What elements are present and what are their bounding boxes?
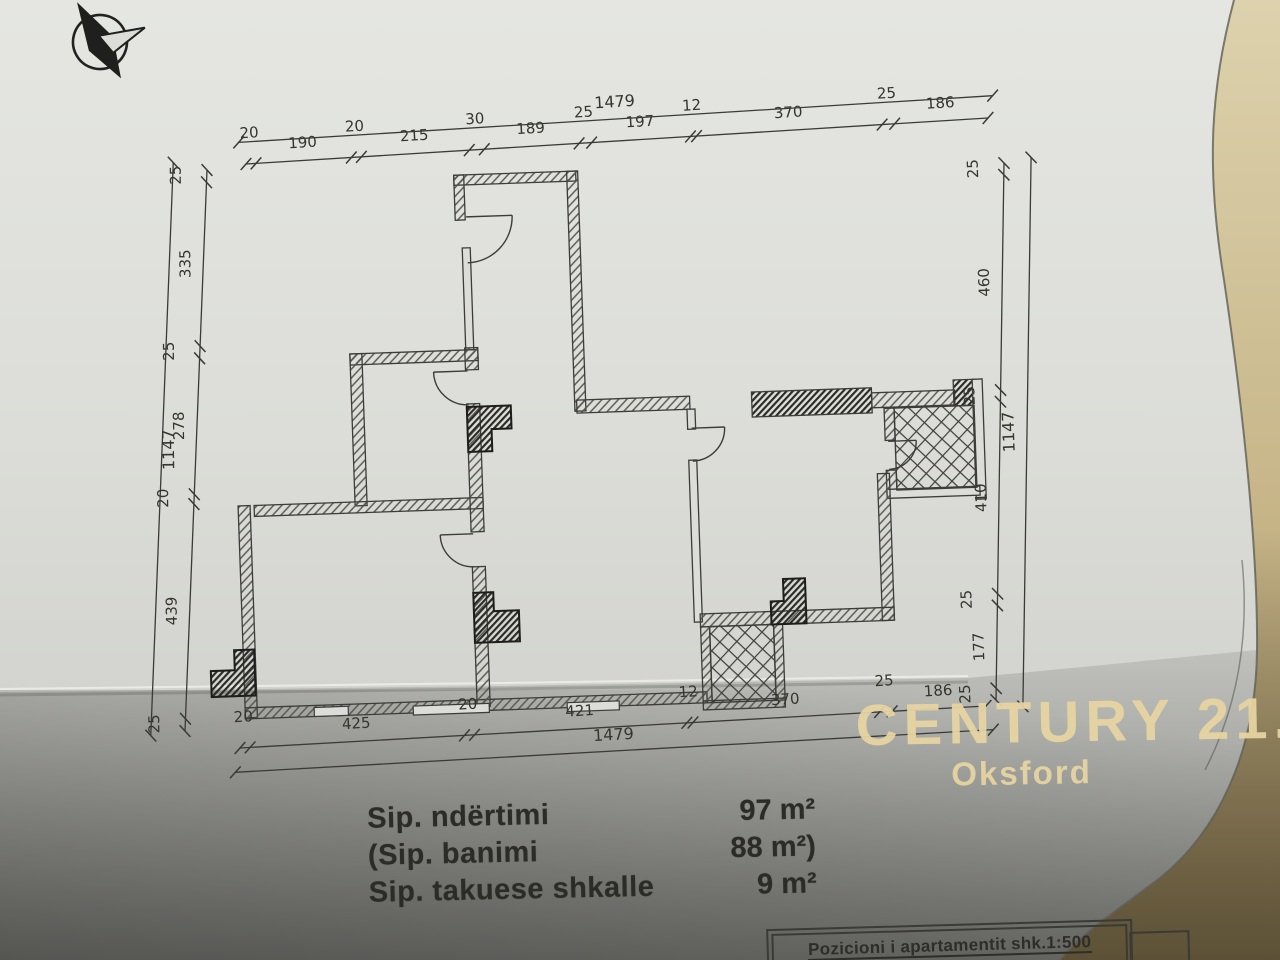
door-leaf bbox=[888, 440, 916, 441]
dim-segment-label: 439 bbox=[163, 597, 181, 626]
dim-segment-label: 20 bbox=[344, 117, 364, 136]
wall bbox=[751, 388, 872, 417]
dim-segment-label: 25 bbox=[956, 684, 975, 704]
dim-segment-label: 421 bbox=[565, 701, 595, 721]
dim-segment-label: 190 bbox=[288, 133, 318, 153]
dim-segment-label: 410 bbox=[971, 483, 990, 512]
dim-segment-label: 12 bbox=[678, 682, 698, 701]
floorplan-photo: 2019020215301892519712370251861479204252… bbox=[0, 0, 1280, 960]
dim-total-label: 1147 bbox=[998, 411, 1019, 452]
dim-segment-label: 25 bbox=[145, 714, 163, 733]
shaft-crosshatch bbox=[710, 624, 777, 702]
dim-segment-label: 25 bbox=[964, 159, 983, 179]
dim-segment-label: 25 bbox=[957, 589, 976, 609]
dim-segment-label: 425 bbox=[341, 714, 371, 734]
wall bbox=[687, 409, 696, 429]
dim-segment-label: 460 bbox=[975, 268, 994, 297]
dim-total-label: 1147 bbox=[159, 429, 179, 470]
dim-segment-label: 25 bbox=[876, 84, 896, 103]
dim-segment-label: 177 bbox=[969, 632, 988, 661]
window-marker bbox=[413, 703, 489, 715]
dim-segment-label: 25 bbox=[573, 102, 593, 121]
dim-segment-label: 25 bbox=[160, 342, 178, 361]
wall bbox=[465, 348, 479, 370]
dim-segment-label: 25 bbox=[874, 671, 894, 690]
dim-segment-label: 335 bbox=[176, 249, 194, 278]
shaft-crosshatch bbox=[894, 405, 977, 490]
dim-segment-label: 25 bbox=[960, 386, 979, 406]
dim-segment-label: 12 bbox=[682, 96, 702, 115]
wall bbox=[872, 390, 955, 408]
dim-segment-label: 370 bbox=[770, 689, 800, 709]
dim-total-label: 1479 bbox=[593, 724, 635, 745]
dim-segment-label: 186 bbox=[923, 681, 953, 701]
dim-segment-label: 215 bbox=[399, 126, 429, 146]
dim-segment-label: 20 bbox=[154, 489, 172, 508]
dim-segment-label: 20 bbox=[233, 707, 253, 726]
dim-total-label: 1479 bbox=[594, 91, 636, 112]
dim-segment-label: 20 bbox=[458, 695, 478, 714]
wall bbox=[454, 175, 466, 220]
wall bbox=[884, 408, 895, 440]
floorplan-drawing: 2019020215301892519712370251861479204252… bbox=[0, 0, 1280, 960]
dim-segment-label: 370 bbox=[773, 102, 803, 122]
dim-segment-label: 186 bbox=[925, 93, 955, 113]
dim-segment-label: 25 bbox=[167, 165, 185, 184]
dim-segment-label: 30 bbox=[465, 109, 485, 128]
dim-segment-label: 197 bbox=[625, 112, 655, 132]
dim-segment-label: 189 bbox=[516, 118, 546, 138]
